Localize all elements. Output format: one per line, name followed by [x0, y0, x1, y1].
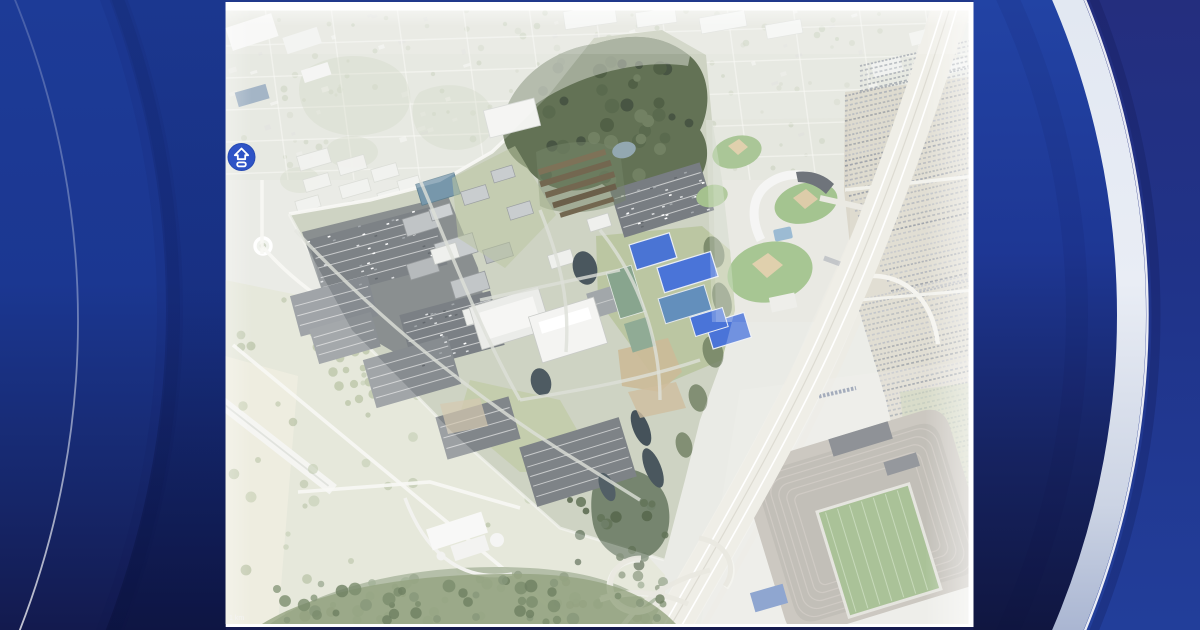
svg-text:1 km: 1 km	[229, 615, 244, 622]
